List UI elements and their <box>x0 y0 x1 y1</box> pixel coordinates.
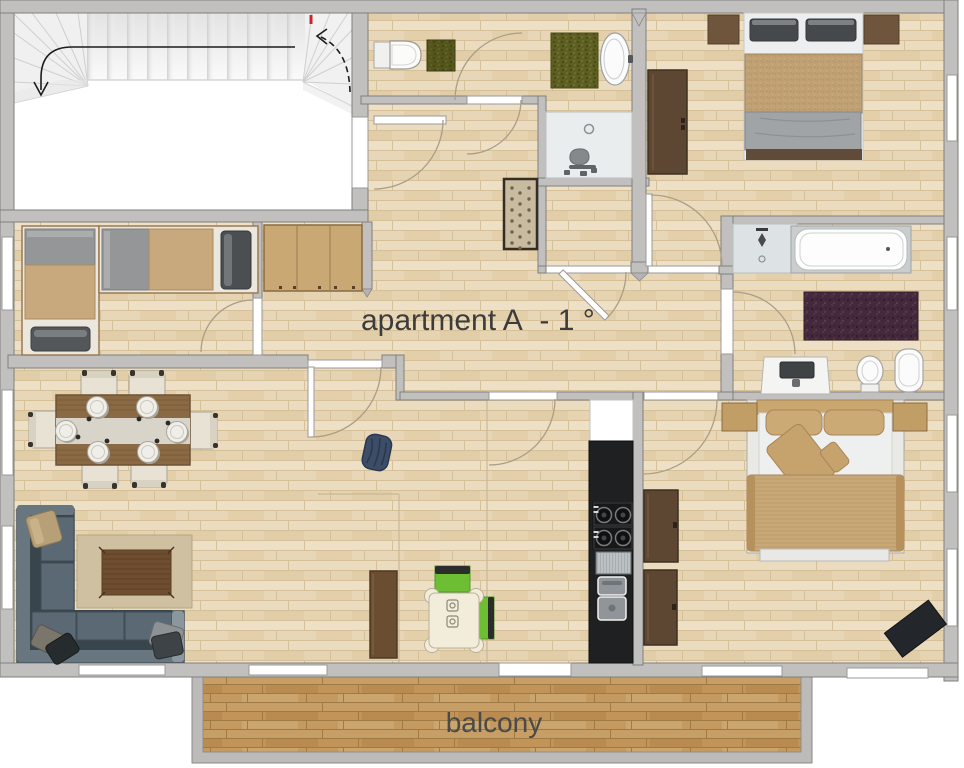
svg-text:balcony: balcony <box>446 707 543 738</box>
svg-text:apartment A - 1 °: apartment A - 1 ° <box>361 304 595 337</box>
